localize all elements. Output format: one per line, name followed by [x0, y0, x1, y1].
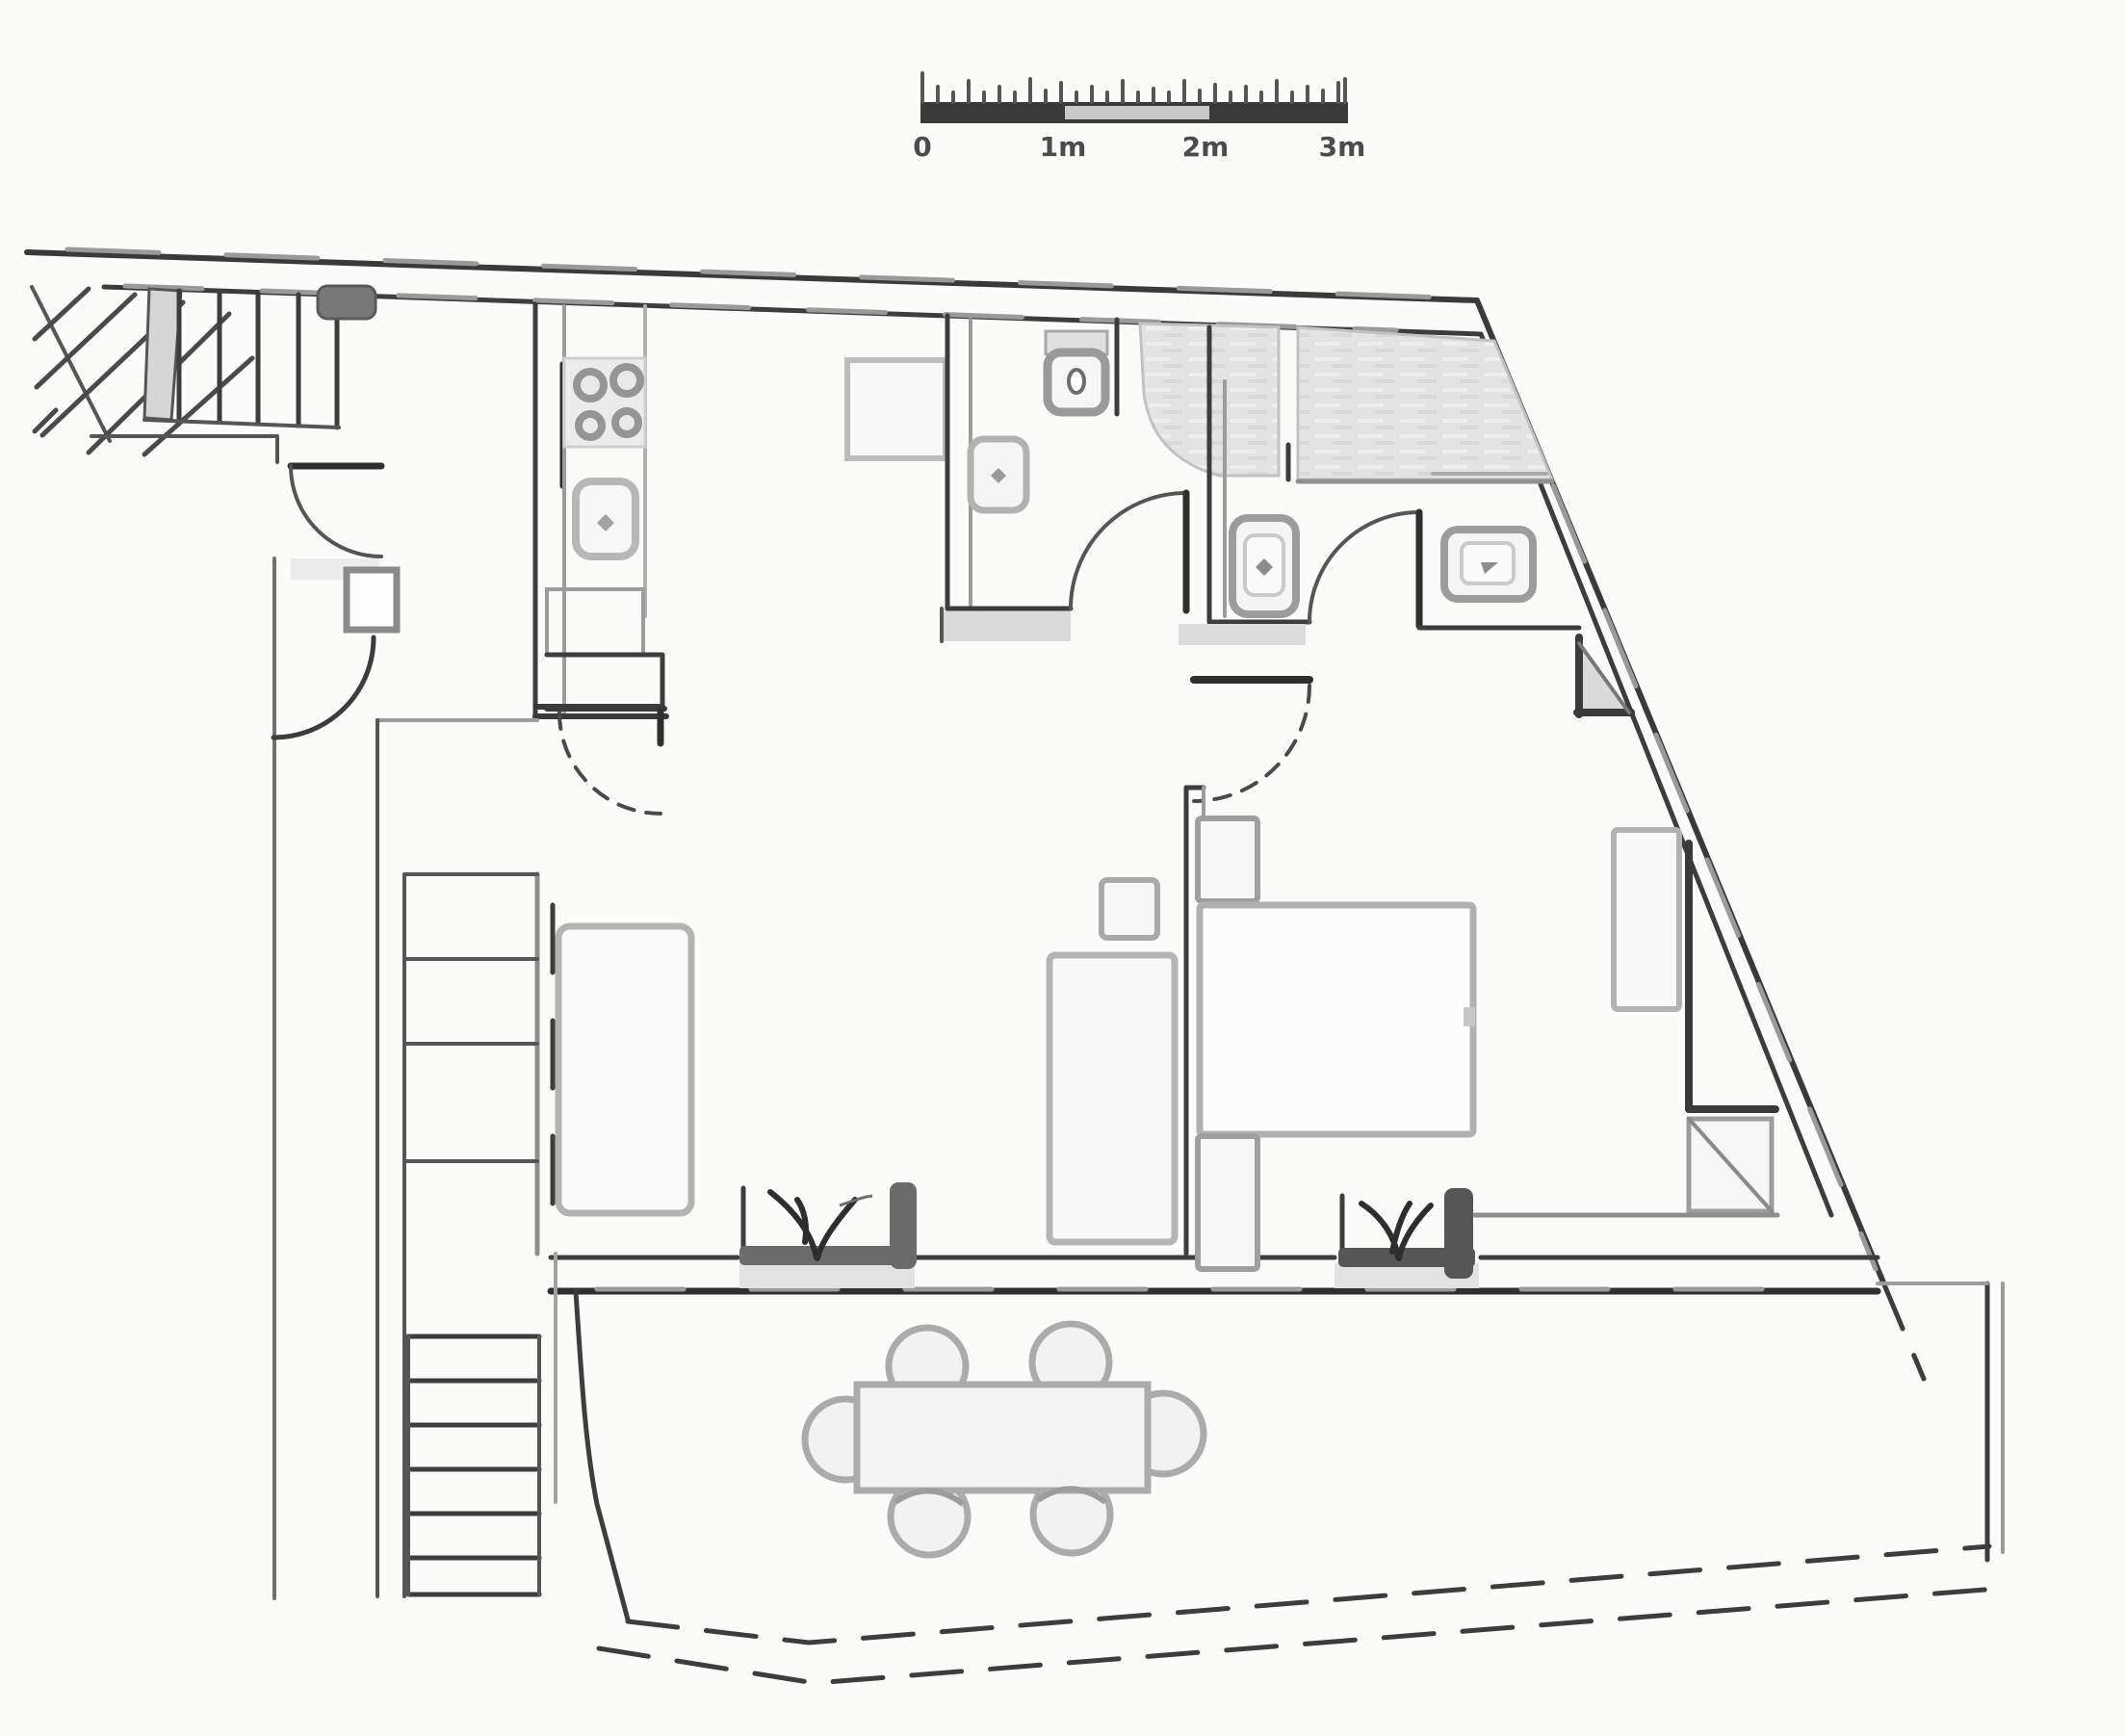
wc-door-swing-arc: [1071, 493, 1186, 609]
entry-door-mat: [318, 286, 376, 319]
planter-block: [890, 1182, 917, 1269]
planter-2: [1338, 1188, 1475, 1279]
wardrobe: [1614, 830, 1679, 1009]
single-bed: [558, 926, 691, 1213]
bathroom2-door-swing-arc: [1309, 512, 1419, 622]
side-table: [1101, 880, 1157, 938]
entry-wall-column: [347, 570, 397, 630]
scale-label-3m: 3m: [1319, 131, 1366, 163]
sideboard: [1050, 955, 1175, 1242]
bedroom-2: [1198, 818, 1777, 1269]
terrace-door-sill-1: [739, 1263, 915, 1288]
hall-cabinet: [847, 360, 946, 458]
burner: [615, 411, 638, 434]
dining-set: [805, 1324, 1204, 1555]
kitchen-lower-cabinet: [547, 589, 643, 655]
entry-lower-wall: [91, 436, 277, 462]
floor-plan-page: 0 1m 2m 3m: [0, 0, 2125, 1736]
scale-label-0: 0: [913, 131, 931, 163]
hall-threshold: [942, 609, 1071, 641]
scale-bar-mid-segment: [1065, 106, 1209, 119]
bathroom2-washbasin-right: [1444, 530, 1533, 599]
kitchen-counter-bottom: [535, 709, 666, 716]
scale-label-2m: 2m: [1182, 131, 1230, 163]
kitchen: [535, 304, 666, 716]
floor-plan-drawing: 0 1m 2m 3m: [0, 0, 2125, 1736]
entry-stair-treads: [179, 291, 337, 428]
scale-label-1m: 1m: [1040, 131, 1087, 163]
entry-door-swing-arc: [291, 466, 381, 557]
planter-1: [739, 1182, 917, 1269]
hall-door-swing-arc: [273, 637, 374, 738]
bedroom1-door-swing-arc-dashed: [559, 713, 661, 814]
kitchen-sink: [576, 481, 635, 557]
planter-block: [1444, 1188, 1473, 1279]
nightstand-dresser: [1198, 1136, 1257, 1269]
shower-tiled-area-2: [1298, 327, 1552, 479]
burner: [577, 372, 604, 399]
double-bed: [1200, 905, 1473, 1134]
bed-notch: [1464, 1007, 1475, 1026]
living-room-furniture: [1050, 880, 1175, 1242]
bathroom-2: [1140, 324, 1631, 714]
scale-bar: 0 1m 2m 3m: [913, 73, 1365, 163]
wc-washbasin: [971, 439, 1026, 510]
bedroom-1: [537, 707, 691, 1213]
terrace-right-edge-inner: [1878, 1283, 2003, 1552]
terrace-left-edge: [576, 1291, 628, 1619]
bedroom2-threshold: [1179, 624, 1306, 645]
right-diagonal-dashed-tail: [1883, 1283, 1924, 1379]
entry-stairs: [144, 286, 376, 428]
dining-table: [857, 1385, 1148, 1490]
burner: [579, 414, 602, 437]
toilet: [1046, 331, 1107, 412]
bathroom2-washbasin-left: [1232, 518, 1296, 614]
ruler-ticks: [938, 79, 1338, 102]
burner: [613, 367, 640, 394]
corridor: [847, 316, 1071, 641]
entry-doors: [273, 466, 397, 738]
stair-wide-treads: [404, 874, 537, 1161]
toilet-bowl-opening: [1069, 370, 1084, 393]
bedroom2-door-swing-arc-dashed: [1194, 686, 1309, 801]
entry-winder-step: [144, 289, 181, 420]
nightstand: [1198, 818, 1257, 901]
hatch-boundary: [32, 287, 110, 441]
staircase-down: [377, 720, 556, 1596]
terrace-boundary-dashed-upper: [628, 1546, 1989, 1643]
stair-narrow-treads: [408, 1336, 539, 1594]
stove: [564, 358, 645, 447]
